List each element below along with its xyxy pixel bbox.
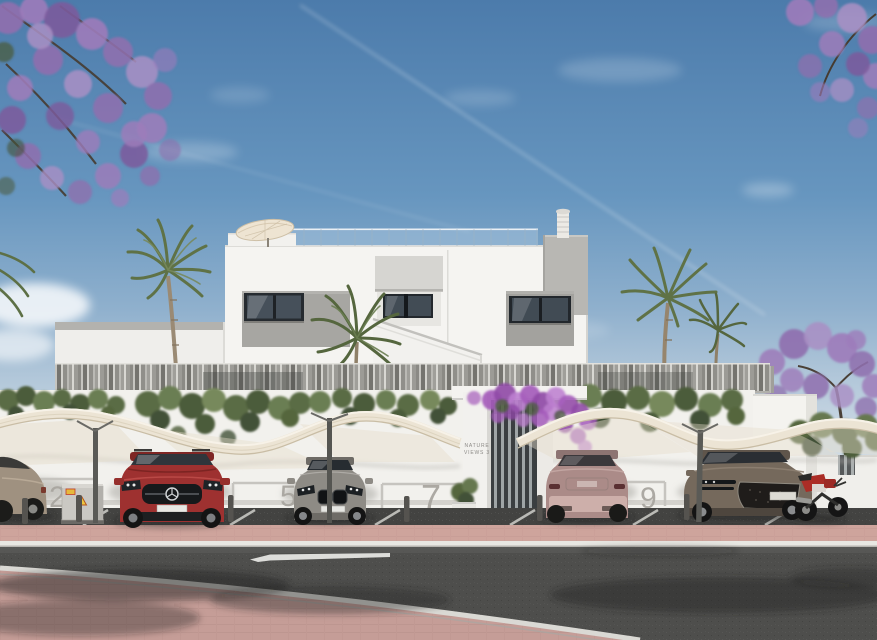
bollard <box>76 495 82 522</box>
center-window <box>383 294 433 318</box>
warning-sticker <box>66 489 75 495</box>
entrance-sign-line1: NATURE <box>465 443 490 449</box>
left-window <box>244 293 304 323</box>
license-plate <box>577 481 597 487</box>
bollard <box>228 495 234 522</box>
bollard <box>22 498 28 524</box>
license-plate <box>770 492 796 500</box>
entrance-sign: NATURE VIEWS 3 <box>464 443 490 456</box>
chimney <box>556 209 570 238</box>
bollard <box>404 496 410 522</box>
scene-svg: 2 5 7 9 NATURE VIEWS 3 <box>0 0 877 640</box>
rooftop-glass-railing <box>266 229 538 247</box>
left-wing <box>55 322 225 368</box>
right-window <box>509 296 571 325</box>
render-viewport: 2 5 7 9 NATURE VIEWS 3 <box>0 0 877 640</box>
license-plate <box>157 505 187 512</box>
bollard <box>684 494 690 520</box>
entrance-sign-line2: VIEWS 3 <box>464 450 490 456</box>
bollard <box>537 495 543 521</box>
license-plate <box>321 506 345 512</box>
curb <box>0 541 877 546</box>
